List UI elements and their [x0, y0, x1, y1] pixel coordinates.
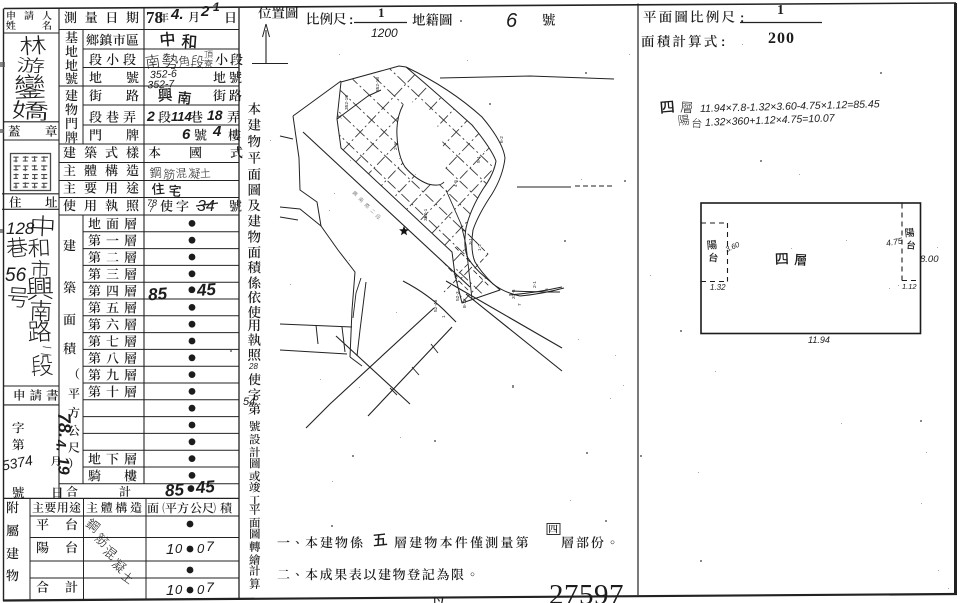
svg-text:4.: 4. — [53, 438, 70, 452]
svg-text:352-18: 352-18 — [375, 77, 381, 92]
svg-text:85: 85 — [147, 284, 168, 304]
svg-text:19: 19 — [54, 457, 72, 475]
svg-text:85: 85 — [164, 480, 185, 500]
svg-text:114: 114 — [171, 109, 192, 124]
svg-text:6-2: 6-2 — [499, 136, 505, 143]
svg-text::: : — [349, 12, 353, 27]
svg-text:1: 1 — [441, 315, 447, 318]
svg-text:2-1: 2-1 — [532, 281, 538, 288]
svg-text:2: 2 — [146, 108, 155, 124]
svg-text:54: 54 — [243, 396, 255, 408]
svg-text:11.94: 11.94 — [808, 335, 830, 345]
svg-text:31-5: 31-5 — [511, 289, 517, 299]
svg-text:2-4: 2-4 — [393, 143, 399, 150]
svg-text::: : — [721, 34, 725, 49]
svg-text:8-1: 8-1 — [462, 301, 468, 308]
svg-text:1: 1 — [166, 541, 174, 558]
svg-text:1: 1 — [777, 3, 784, 18]
svg-text:3-1: 3-1 — [468, 238, 474, 245]
svg-text:0: 0 — [197, 541, 205, 556]
svg-text:1: 1 — [378, 5, 385, 20]
svg-text:4: 4 — [212, 123, 222, 140]
svg-text:2: 2 — [200, 3, 210, 20]
svg-text:352-1: 352-1 — [423, 208, 429, 221]
svg-text:1.12: 1.12 — [902, 282, 917, 291]
svg-text:5-1: 5-1 — [476, 156, 482, 163]
svg-text:28: 28 — [248, 362, 258, 371]
svg-text:1.32: 1.32 — [710, 283, 726, 292]
svg-text:45: 45 — [194, 477, 216, 497]
svg-text:352-16: 352-16 — [344, 95, 350, 110]
svg-text:0: 0 — [175, 541, 183, 556]
svg-text:4.: 4. — [170, 6, 184, 23]
svg-text:18: 18 — [207, 107, 223, 123]
svg-text:7: 7 — [206, 579, 215, 595]
svg-text:27597: 27597 — [549, 579, 624, 603]
svg-text:45: 45 — [195, 280, 217, 300]
svg-text:52-46: 52-46 — [433, 299, 439, 312]
svg-text:4-6: 4-6 — [453, 180, 459, 187]
svg-text:8.00: 8.00 — [920, 254, 939, 265]
svg-text:1200: 1200 — [371, 26, 398, 40]
svg-text:5: 5 — [544, 288, 550, 291]
svg-text:0: 0 — [175, 582, 183, 597]
svg-text:1-2: 1-2 — [477, 244, 483, 251]
svg-text:34: 34 — [197, 198, 215, 215]
svg-text:200: 200 — [768, 30, 795, 47]
svg-text:大: 大 — [336, 114, 343, 119]
svg-text:6: 6 — [182, 126, 191, 143]
svg-text:128: 128 — [6, 219, 35, 238]
svg-text:78: 78 — [146, 8, 163, 27]
svg-text:1: 1 — [166, 582, 174, 599]
svg-text:6: 6 — [506, 10, 518, 32]
svg-text:7: 7 — [206, 538, 215, 554]
svg-text:7: 7 — [149, 205, 154, 214]
svg-text:0: 0 — [197, 582, 205, 597]
svg-text:52-3: 52-3 — [455, 291, 461, 301]
svg-text:7: 7 — [517, 303, 523, 306]
svg-text:56: 56 — [5, 265, 27, 286]
